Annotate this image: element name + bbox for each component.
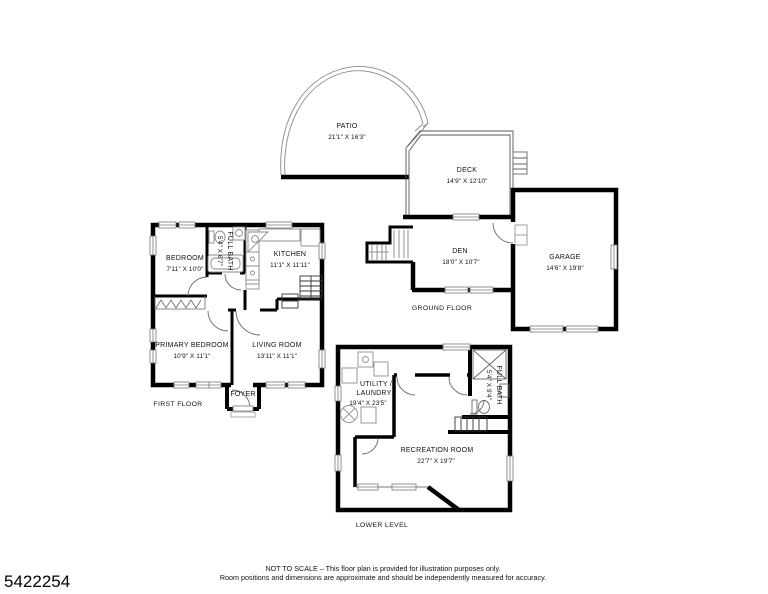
kitchen-dims: 11'1" X 11'11" xyxy=(270,262,310,269)
bedroom-dims: 7'11" X 10'0" xyxy=(167,266,204,273)
primary-bedroom-dims: 10'9" X 11'1" xyxy=(174,353,211,360)
deck-dims: 14'9" X 12'10" xyxy=(446,178,487,185)
disclaimer-line-1: NOT TO SCALE – This floor plan is provid… xyxy=(265,564,500,573)
kitchen-label: KITCHEN xyxy=(274,251,306,258)
recreation-room-dims: 22'7" X 19'7" xyxy=(417,458,454,465)
primary-bedroom-label: PRIMARY BEDROOM xyxy=(155,342,229,349)
deck-steps xyxy=(513,152,527,174)
utility-laundry-label-1: UTILITY / xyxy=(360,381,392,388)
garage-label: GARAGE xyxy=(549,254,581,261)
recreation-room-label: RECREATION ROOM xyxy=(401,447,474,454)
den-label: DEN xyxy=(452,248,468,255)
lower-level-label: LOWER LEVEL xyxy=(356,522,408,529)
living-room-label: LIVING ROOM xyxy=(252,342,301,349)
foyer-opening xyxy=(231,381,253,389)
background xyxy=(0,0,768,594)
deck-label: DECK xyxy=(457,167,478,174)
first-floor-label: FIRST FLOOR xyxy=(153,401,202,408)
living-room-dims: 13'11" X 11'1" xyxy=(257,353,297,360)
disclaimer-line-2: Room positions and dimensions are approx… xyxy=(220,573,546,582)
patio-label: PATIO xyxy=(336,123,358,130)
ground-floor-label: GROUND FLOOR xyxy=(412,305,472,312)
listing-number: 5422254 xyxy=(4,572,70,591)
den-dims: 18'0" X 10'7" xyxy=(442,259,479,266)
full-bath-dims: 5'4" X 6'7" xyxy=(216,236,223,266)
utility-laundry-dims: 19'4" X 23'5" xyxy=(349,400,386,407)
patio-dims: 21'1" X 16'3" xyxy=(328,134,365,141)
utility-laundry-label-2: LAUNDRY xyxy=(356,390,391,397)
lower-bath-dims: 5'4" X 9'4" xyxy=(485,370,492,400)
bedroom-label: BEDROOM xyxy=(166,255,204,262)
full-bath-label: FULL BATH xyxy=(226,231,233,270)
foyer-label: FOYER xyxy=(230,391,255,398)
floor-plan-page: PATIO 21'1" X 16'3" DECK 14'9" X 12'10" … xyxy=(0,0,768,594)
floor-plan-drawing: PATIO 21'1" X 16'3" DECK 14'9" X 12'10" … xyxy=(0,0,768,594)
lower-bath-label: FULL BATH xyxy=(495,365,502,404)
garage-dims: 14'6" X 19'8" xyxy=(546,265,583,272)
